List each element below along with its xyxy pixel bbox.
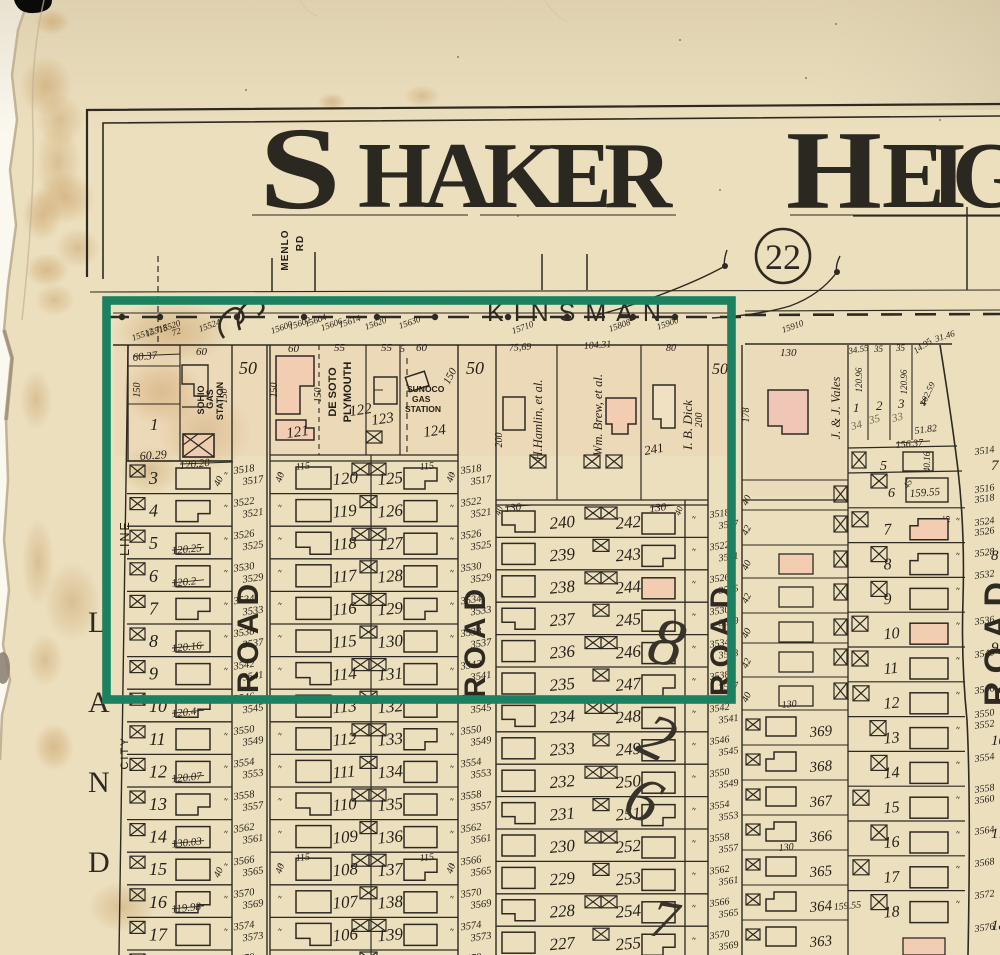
svg-text:2: 2 (876, 398, 883, 413)
svg-text:126: 126 (377, 500, 405, 521)
svg-text:139: 139 (377, 924, 405, 945)
svg-text:135: 135 (377, 794, 404, 815)
svg-text:14: 14 (883, 764, 900, 782)
svg-text:130: 130 (504, 501, 522, 515)
svg-text:EIG: EIG (882, 124, 1000, 228)
svg-text:12: 12 (149, 761, 167, 781)
svg-text:150: 150 (132, 383, 143, 398)
svg-text:121: 121 (285, 423, 310, 442)
svg-text:138: 138 (377, 892, 405, 913)
svg-text:80: 80 (666, 343, 676, 354)
svg-text:368: 368 (808, 758, 833, 776)
svg-text:115: 115 (295, 461, 310, 473)
svg-text:11: 11 (149, 729, 166, 749)
svg-text:119: 119 (332, 501, 358, 522)
svg-text:60: 60 (416, 342, 428, 354)
svg-text:125: 125 (377, 468, 404, 489)
svg-text:369: 369 (808, 723, 833, 741)
svg-text:50: 50 (466, 358, 484, 378)
svg-text:12: 12 (883, 694, 900, 712)
svg-text:137: 137 (377, 859, 406, 880)
svg-text:18: 18 (883, 903, 900, 921)
svg-text:9: 9 (149, 664, 158, 684)
svg-text:130: 130 (778, 841, 794, 854)
svg-text:115: 115 (295, 852, 310, 864)
svg-text:16: 16 (883, 834, 900, 852)
svg-text:50: 50 (239, 358, 257, 378)
svg-text:22: 22 (765, 237, 801, 277)
svg-text:STATION: STATION (405, 404, 441, 414)
svg-text:365: 365 (808, 863, 833, 881)
svg-text:3: 3 (148, 468, 158, 488)
svg-text:6: 6 (149, 566, 158, 586)
svg-text:55: 55 (334, 342, 346, 354)
svg-text:HAKER: HAKER (358, 124, 673, 228)
svg-text:233: 233 (549, 739, 576, 760)
svg-text:232: 232 (549, 771, 577, 792)
svg-text:243: 243 (615, 544, 642, 565)
svg-text:123: 123 (370, 410, 395, 429)
svg-text:245: 245 (615, 609, 642, 630)
svg-text:129: 129 (377, 598, 405, 619)
svg-text:115: 115 (419, 461, 434, 473)
svg-text:136: 136 (377, 826, 405, 847)
svg-text:GAS: GAS (205, 389, 215, 409)
svg-text:248: 248 (615, 706, 643, 727)
svg-text:115: 115 (419, 852, 434, 864)
svg-text:120: 120 (332, 468, 360, 489)
svg-text:200: 200 (694, 413, 705, 428)
svg-text:130: 130 (377, 631, 405, 652)
svg-text:17: 17 (149, 924, 168, 944)
svg-text:104.31: 104.31 (583, 339, 611, 352)
svg-text:18: 18 (991, 918, 1000, 934)
svg-text:240: 240 (549, 512, 577, 533)
svg-text:15: 15 (883, 799, 900, 817)
svg-text:234: 234 (549, 706, 577, 727)
svg-text:159.55: 159.55 (909, 486, 941, 500)
svg-text:35: 35 (895, 343, 906, 353)
svg-text:122: 122 (348, 401, 373, 420)
svg-text:13: 13 (883, 729, 900, 747)
svg-text:366: 366 (808, 828, 833, 846)
svg-text:75,69: 75,69 (508, 341, 531, 354)
svg-text:252: 252 (615, 836, 643, 857)
svg-text:60: 60 (288, 343, 300, 355)
svg-text:246: 246 (615, 641, 643, 662)
svg-text:247: 247 (615, 674, 644, 695)
svg-text:11: 11 (883, 660, 899, 678)
svg-text:1: 1 (853, 400, 860, 415)
svg-text:CITY: CITY (119, 736, 131, 769)
svg-text:40.16: 40.16 (922, 451, 932, 472)
svg-text:RD: RD (295, 235, 306, 251)
svg-text:5: 5 (400, 344, 405, 355)
svg-text:150: 150 (269, 383, 280, 398)
svg-text:60: 60 (196, 346, 208, 358)
svg-text:LINE: LINE (118, 520, 132, 556)
svg-text:55: 55 (381, 342, 393, 354)
svg-text:228: 228 (549, 901, 577, 922)
svg-text:8: 8 (149, 631, 158, 651)
svg-text:120.96: 120.96 (854, 367, 864, 392)
svg-text:1: 1 (150, 415, 159, 434)
svg-text:238: 238 (549, 577, 577, 598)
svg-text:J. & J. Vales: J. & J. Vales (829, 376, 843, 439)
svg-text:I. B. Dick: I. B. Dick (680, 400, 695, 451)
svg-text:35: 35 (873, 344, 884, 354)
svg-text:112: 112 (332, 729, 358, 750)
svg-text:6: 6 (888, 486, 895, 501)
svg-text:13: 13 (149, 794, 167, 814)
svg-text:H.Hamlin, et al.: H.Hamlin, et al. (531, 380, 545, 462)
svg-text:227: 227 (549, 933, 578, 954)
svg-text:253: 253 (615, 868, 642, 889)
svg-text:237: 237 (549, 609, 578, 630)
svg-text:200: 200 (494, 433, 505, 448)
svg-text:236: 236 (549, 641, 577, 662)
svg-text:117: 117 (332, 566, 359, 587)
svg-text:118: 118 (332, 533, 358, 554)
svg-text:GAS: GAS (412, 394, 431, 404)
svg-text:363: 363 (808, 933, 833, 951)
svg-text:130: 130 (780, 347, 797, 359)
svg-text:7: 7 (149, 598, 159, 618)
svg-text:8: 8 (883, 556, 892, 574)
svg-text:254: 254 (615, 901, 643, 922)
svg-text:109: 109 (332, 826, 360, 847)
svg-text:230: 230 (549, 836, 577, 857)
svg-text:16: 16 (149, 892, 167, 912)
svg-text:131: 131 (377, 663, 404, 684)
svg-text:242: 242 (615, 512, 643, 533)
svg-text:50: 50 (712, 361, 728, 378)
svg-text:178: 178 (741, 408, 752, 423)
svg-text:111: 111 (332, 761, 357, 782)
svg-text:DE SOTO: DE SOTO (327, 367, 339, 417)
svg-text:239: 239 (549, 544, 577, 565)
svg-text:15: 15 (149, 859, 167, 879)
svg-text:235: 235 (549, 674, 576, 695)
svg-text:150: 150 (219, 389, 230, 404)
svg-text:255: 255 (615, 933, 642, 954)
svg-text:10: 10 (991, 733, 1000, 749)
svg-text:5: 5 (149, 533, 158, 553)
svg-text:133: 133 (377, 729, 404, 750)
svg-text:115: 115 (332, 631, 358, 652)
svg-text:120.96: 120.96 (899, 369, 909, 394)
svg-text:N: N (88, 766, 110, 799)
svg-text:Wm. Brew, et al.: Wm. Brew, et al. (591, 374, 605, 456)
svg-text:3: 3 (897, 396, 905, 411)
svg-text:128: 128 (377, 566, 405, 587)
svg-text:9: 9 (883, 591, 892, 609)
svg-text:130: 130 (781, 698, 797, 711)
svg-text:114: 114 (332, 664, 358, 685)
svg-text:SUNOCO: SUNOCO (407, 384, 445, 394)
svg-text:244: 244 (615, 577, 643, 598)
svg-text:9: 9 (991, 640, 999, 656)
svg-text:367: 367 (808, 793, 834, 811)
svg-text:108: 108 (332, 859, 360, 880)
svg-text:10: 10 (883, 625, 900, 643)
svg-text:107: 107 (332, 892, 361, 913)
svg-text:4: 4 (149, 501, 158, 521)
svg-text:14: 14 (149, 827, 167, 847)
svg-text:17: 17 (883, 868, 901, 886)
svg-text:124: 124 (422, 422, 447, 441)
svg-text:231: 231 (549, 803, 576, 824)
svg-text:17: 17 (991, 826, 1000, 842)
svg-text:D: D (88, 846, 110, 879)
svg-text:H: H (786, 109, 882, 233)
svg-text:150: 150 (313, 388, 324, 403)
svg-text:127: 127 (377, 533, 406, 554)
svg-text:116: 116 (332, 598, 358, 619)
svg-text:110: 110 (332, 794, 358, 815)
svg-text:364: 364 (808, 898, 833, 916)
svg-text:S: S (259, 103, 341, 234)
svg-text:134: 134 (377, 761, 405, 782)
svg-text:229: 229 (549, 868, 577, 889)
svg-text:8: 8 (991, 548, 999, 564)
svg-text:106: 106 (332, 924, 360, 945)
svg-text:MENLO: MENLO (280, 229, 291, 270)
